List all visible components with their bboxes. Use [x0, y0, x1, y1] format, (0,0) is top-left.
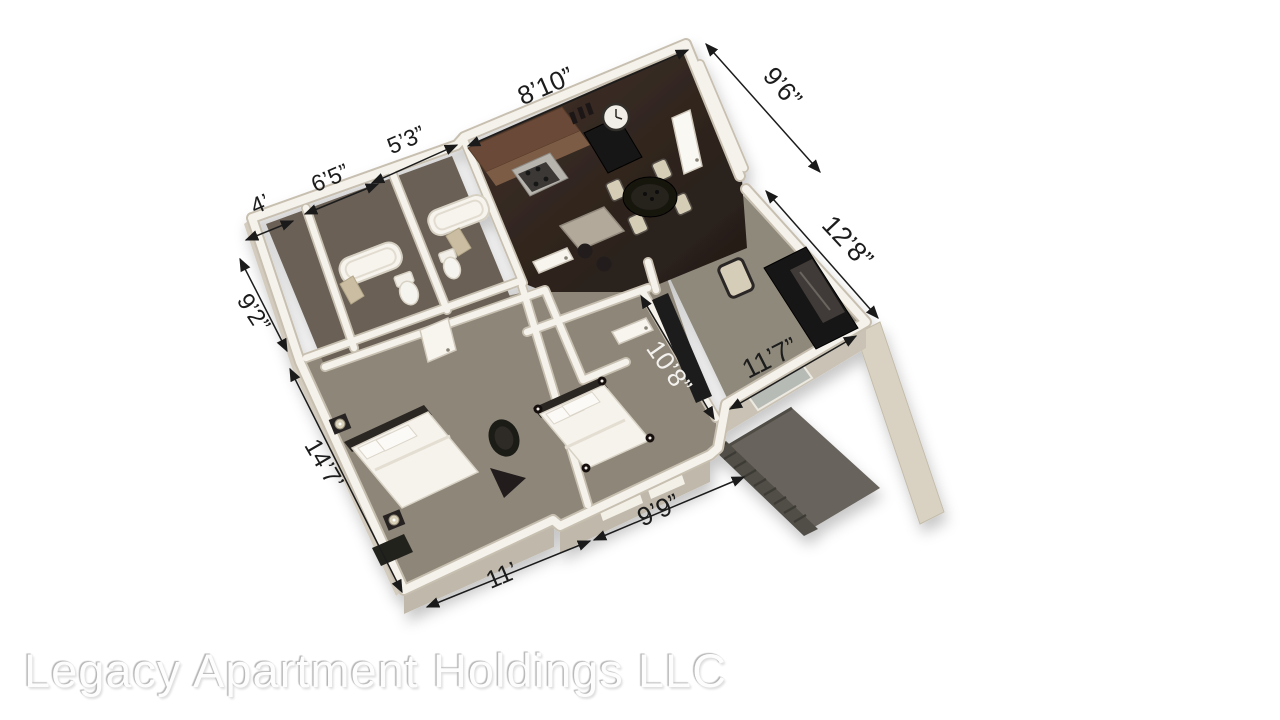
dim-label-living-east: 12’8”: [816, 210, 879, 274]
bar-stool-2: [597, 257, 612, 272]
floor-plan-page: 8’10” 9’6” 5’3” 6’5” 4’ 9’2” 14’7’ 11’ 1…: [0, 0, 1280, 720]
dim-label-bath-left: 6’5”: [307, 158, 352, 197]
building: [244, 44, 944, 614]
watermark: Legacy Apartment Holdings LLC: [24, 643, 727, 698]
door-knob: [695, 158, 699, 162]
floor-plan-rendering: 8’10” 9’6” 5’3” 6’5” 4’ 9’2” 14’7’ 11’ 1…: [0, 0, 1280, 720]
dining-table-top: [631, 184, 669, 210]
dim-label-entry-east: 9’6”: [757, 61, 808, 113]
bar-stool: [578, 244, 593, 259]
wall-clock: [603, 104, 629, 130]
